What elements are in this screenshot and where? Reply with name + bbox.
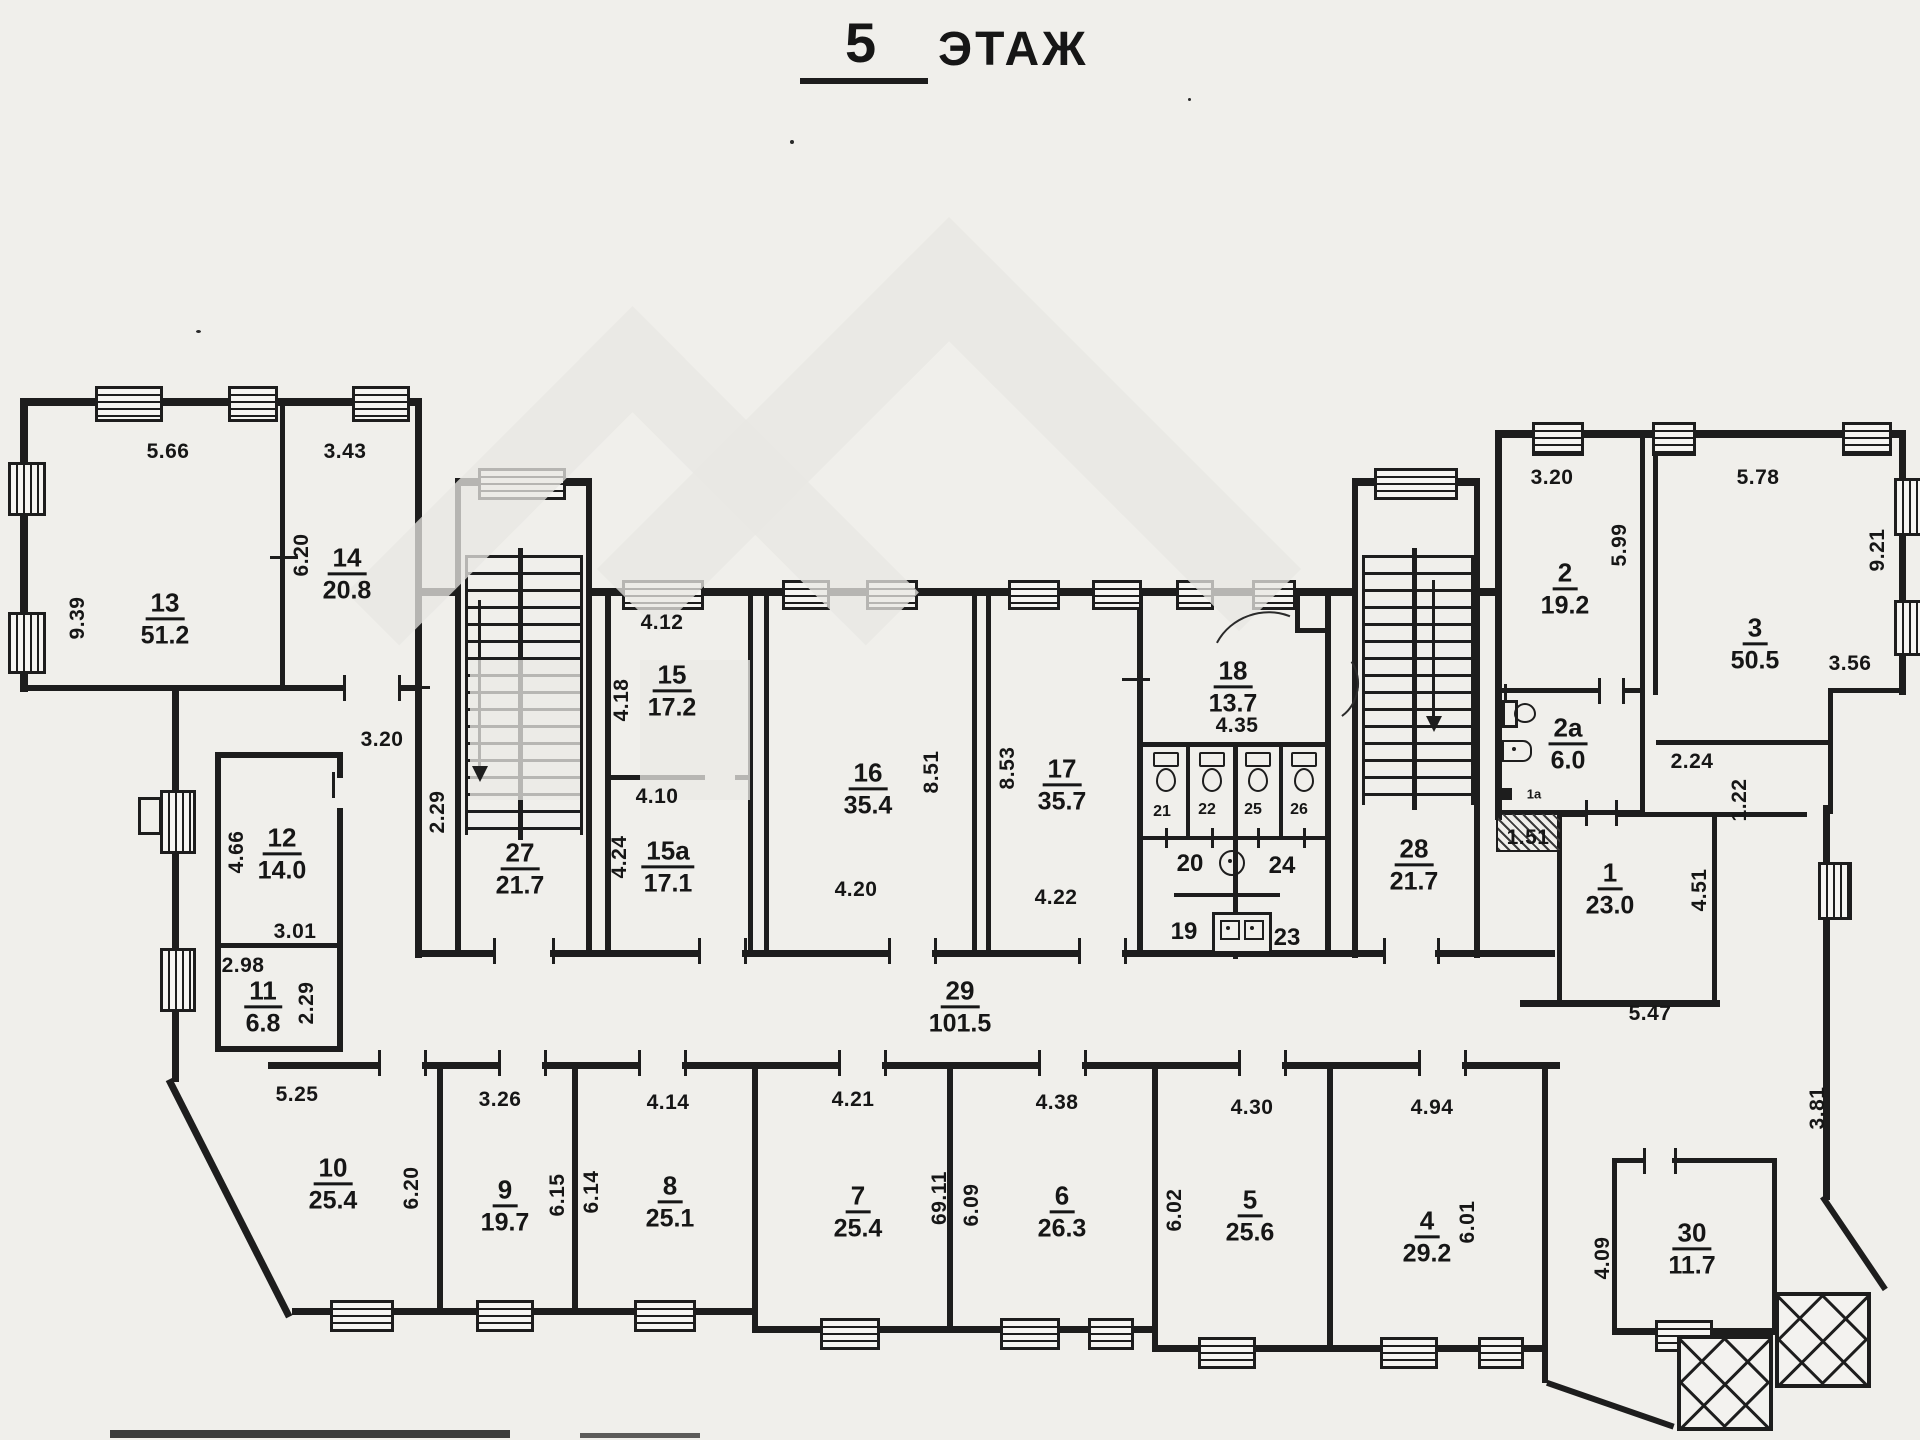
room-18-number: 18 [1214,657,1253,688]
window-hatch [228,386,278,422]
wall-diagonal [1546,1380,1675,1430]
door-mark [1257,828,1260,848]
sink-icon [1502,740,1532,762]
corridor-29-area: 101.5 [929,1009,992,1039]
cell-24-label: 24 [1269,852,1296,880]
room-14-number: 14 [328,544,367,575]
door-mark [1084,1050,1087,1076]
window-hatch [1532,422,1584,456]
room-6-label: 626.3 [1038,1182,1087,1243]
door-opening [890,948,932,959]
room-16-number: 16 [849,759,888,790]
door-mark [402,686,430,689]
dim-3-81: 3.81 [1806,1087,1830,1130]
door-opening [1240,1060,1282,1071]
dim-3-01: 3.01 [274,920,317,944]
window-hatch [352,386,410,422]
page-title: ЭТАЖ [938,22,1089,77]
dim-4-14: 4.14 [647,1091,690,1115]
dim-5-47: 5.47 [1629,1002,1672,1026]
room-9-area: 19.7 [481,1208,530,1238]
dim-4-09: 4.09 [1591,1237,1615,1280]
window-hatch [1842,422,1892,456]
room-13-area: 51.2 [141,621,190,651]
wall [1712,812,1717,1004]
toilet-icon [1199,752,1225,792]
room-8-number: 8 [658,1172,682,1203]
door-mark [1437,938,1440,964]
wall [437,1068,443,1314]
door-mark [884,1050,887,1076]
title-underline [800,78,928,84]
scan-speck [790,140,794,144]
dim-4-12: 4.12 [641,611,684,635]
toilet-icon [1514,702,1536,723]
wall [1152,1068,1158,1350]
dim-6-20-a: 6.20 [290,534,314,577]
wall [1828,688,1906,693]
room-28-number: 28 [1395,835,1434,866]
door-mark [1418,1050,1421,1076]
room-5-label: 525.6 [1226,1186,1275,1247]
wall [1653,438,1658,695]
page-title: 5 [845,10,876,75]
room-10-area: 25.4 [309,1186,358,1216]
watermark-chevron [597,217,1301,921]
dim-8-53: 8.53 [996,747,1020,790]
room-8-label: 825.1 [646,1172,695,1233]
dim-2-29-a: 2.29 [295,982,319,1025]
room-27-label: 2721.7 [496,839,545,900]
scan-smudge [580,1433,700,1438]
room-17-label: 1735.7 [1038,755,1087,816]
wall [1186,747,1190,839]
room-15a-area: 17.1 [641,869,694,899]
room-2a-area: 6.0 [1549,746,1588,776]
dim-3-56: 3.56 [1829,652,1872,676]
dim-4-35: 4.35 [1216,714,1259,738]
dim-1-51: 1.51 [1507,826,1550,850]
window-hatch [1198,1337,1256,1369]
door-opening [1080,948,1122,959]
window-hatch [160,790,196,854]
dim-5-25: 5.25 [276,1083,319,1107]
room-1-label: 123.0 [1586,859,1635,920]
door-mark [424,1050,427,1076]
room-10-label: 1025.4 [309,1154,358,1215]
stair-arrow-line [1432,580,1435,720]
wall [752,1068,758,1330]
room-30-label: 3011.7 [1668,1219,1715,1280]
wall [1640,690,1645,815]
cell-26-label: 26 [1290,801,1308,819]
cell-21-label: 21 [1153,803,1171,821]
fan-icon [1219,850,1245,876]
room-15a-label: 15а17.1 [641,837,694,898]
dim-69-11: 69.11 [928,1171,952,1225]
room-15a-number: 15а [641,837,694,868]
scan-speck [196,330,201,333]
room-27-area: 21.7 [496,871,545,901]
door-opening [1385,948,1435,959]
dim-4-18: 4.18 [610,679,634,722]
wall [1152,1326,1158,1352]
door-mark [493,938,496,964]
window-hatch [8,612,46,674]
room-16-area: 35.4 [844,791,893,821]
cell-22-label: 22 [1198,801,1216,819]
wall [1542,1345,1548,1383]
door-mark [398,675,401,701]
window-hatch [1894,600,1920,656]
room-13-number: 13 [146,589,185,620]
room-7-number: 7 [846,1182,870,1213]
entry-mark [1498,788,1512,800]
corridor-29-number: 29 [941,977,980,1008]
room-7-label: 725.4 [834,1182,883,1243]
room-4-label: 429.2 [1403,1207,1452,1268]
wall [1174,893,1280,897]
window-hatch [1380,1337,1438,1369]
dim-3-20-b: 3.20 [1531,466,1574,490]
wall [752,1308,758,1333]
cell-23-label: 23 [1274,924,1301,952]
door-mark [1504,684,1507,702]
wall [280,406,285,690]
window-hatch [476,1300,534,1332]
dim-4-10: 4.10 [636,785,679,809]
door-mark [1211,828,1214,848]
room-3-label: 350.5 [1731,614,1780,675]
room-9-label: 919.7 [481,1176,530,1237]
toilet-icon [1291,752,1317,792]
door-mark [1383,938,1386,964]
room-11-label: 116.8 [244,977,282,1038]
door-mark [838,1050,841,1076]
room-15-number: 15 [653,661,692,692]
window-hatch [1000,1318,1060,1350]
wall [1656,740,1831,745]
window-hatch [1478,1337,1524,1369]
wall [1279,747,1283,839]
dim-3-43: 3.43 [324,440,367,464]
room-4-area: 29.2 [1403,1239,1452,1269]
room-12-label: 1214.0 [258,824,307,885]
dim-3-26: 3.26 [479,1088,522,1112]
dim-3-20-a: 3.20 [361,728,404,752]
door-mark [1674,1148,1677,1174]
room-8-area: 25.1 [646,1204,695,1234]
wall [1828,688,1833,814]
room-12-number: 12 [263,824,302,855]
door-mark [934,938,937,964]
door-opening [380,1060,422,1071]
wall [1143,836,1327,840]
room-7-area: 25.4 [834,1214,883,1244]
door-mark [1464,1050,1467,1076]
wall [215,1046,343,1052]
wall [572,1068,578,1314]
room-1-number: 1 [1598,859,1622,890]
scan-smudge [110,1430,510,1438]
room-15-label: 1517.2 [648,661,697,722]
dim-4-51: 4.51 [1688,869,1712,912]
sink-icon [1244,920,1264,940]
dim-4-66: 4.66 [225,831,249,874]
door-mark [1598,678,1601,704]
room-17-number: 17 [1043,755,1082,786]
wall [215,752,343,758]
dim-6-01: 6.01 [1456,1201,1480,1244]
room-28-area: 21.7 [1390,867,1439,897]
wall [415,398,422,958]
window-hatch [1818,862,1852,920]
room-17-area: 35.7 [1038,787,1087,817]
window-hatch [95,386,163,422]
room-6-number: 6 [1050,1182,1074,1213]
floor-plan-sheet: 5 ЭТАЖ [0,0,1920,1440]
dim-4-20: 4.20 [835,878,878,902]
room-10-number: 10 [314,1154,353,1185]
window-hatch [330,1300,394,1332]
cell-25-label: 25 [1244,801,1262,819]
door-opening [700,948,742,959]
room-14-area: 20.8 [323,576,372,606]
window-hatch [8,462,46,516]
stair-arrow-icon [1426,716,1442,732]
room-12-area: 14.0 [258,856,307,886]
window-hatch [1894,478,1920,536]
dim-8-51: 8.51 [920,751,944,794]
room-15-area: 17.2 [648,693,697,723]
room-28-label: 2821.7 [1390,835,1439,896]
stair-arrow-icon [472,766,488,782]
door-mark [1622,678,1625,704]
door-mark [1585,800,1588,826]
room-11-area: 6.8 [244,1009,282,1039]
cell-19-label: 19 [1171,918,1198,946]
door-mark [744,938,747,964]
dim-6-20-b: 6.20 [400,1167,424,1210]
room-13-label: 1351.2 [141,589,190,650]
room-2-area: 19.2 [1541,591,1590,621]
dim-9-21: 9.21 [1866,529,1890,572]
staircase-28 [1362,555,1474,805]
elevator-shaft [1775,1292,1871,1388]
scan-speck [1188,98,1191,101]
door-mark [1238,1050,1241,1076]
dim-4-38: 4.38 [1036,1091,1079,1115]
dim-6-14: 6.14 [580,1171,604,1214]
door-mark [1284,1050,1287,1076]
room-27-number: 27 [501,839,540,870]
dim-2-29-b: 2.29 [426,791,450,834]
wall-diagonal [166,1078,293,1318]
window-hatch [160,948,196,1012]
wall-diagonal [1820,1195,1888,1291]
dim-2-98: 2.98 [222,954,265,978]
door-mark [1124,938,1127,964]
wall [1474,478,1480,958]
door-mark [498,1050,501,1076]
wall [1520,1000,1720,1007]
door-mark [1122,678,1150,681]
dim-4-30: 4.30 [1231,1096,1274,1120]
door-opening [1420,1060,1462,1071]
door-mark [888,938,891,964]
door-mark [684,1050,687,1076]
door-opening [640,1060,682,1071]
room-2-number: 2 [1553,559,1577,590]
wall [1327,1068,1333,1350]
door-opening [500,1060,542,1071]
dim-4-21: 4.21 [832,1088,875,1112]
dim-5-99: 5.99 [1608,524,1632,567]
door-mark [332,772,335,798]
dim-5-78: 5.78 [1737,466,1780,490]
wall [172,688,179,1082]
dim-9-39: 9.39 [66,597,90,640]
dim-6-09: 6.09 [960,1184,984,1227]
door-opening [840,1060,882,1071]
door-mark [343,675,346,701]
wall [1495,430,1502,820]
door-mark [1643,1148,1646,1174]
wall [1542,1068,1548,1350]
door-mark [638,1050,641,1076]
wall [1495,688,1598,693]
door-opening [1040,1060,1082,1071]
sink-icon [1220,920,1240,940]
room-4-number: 4 [1415,1207,1439,1238]
room-9-number: 9 [493,1176,517,1207]
room-5-area: 25.6 [1226,1218,1275,1248]
door-mark [1615,800,1618,826]
dim-2-24: 2.24 [1671,750,1714,774]
door-mark [544,1050,547,1076]
window-hatch [1088,1318,1134,1350]
room-11-number: 11 [244,977,282,1008]
window-hatch [634,1300,696,1332]
room-1-area: 23.0 [1586,891,1635,921]
room-18-label: 1813.7 [1209,657,1258,718]
wall [268,1062,1560,1069]
cell-20-label: 20 [1177,850,1204,878]
stair-stringer [1412,548,1417,810]
wall [1640,438,1645,695]
dim-5-66: 5.66 [147,440,190,464]
dim-4-22: 4.22 [1035,886,1078,910]
cell-1a-label: 1а [1527,787,1541,802]
room-3-number: 3 [1743,614,1767,645]
dim-1-22: 1.22 [1728,779,1752,822]
door-mark [1303,828,1306,848]
door-mark [698,938,701,964]
corridor-29-label: 29101.5 [929,977,992,1038]
wall [215,752,221,1050]
window-hatch [820,1318,880,1350]
door-mark [552,938,555,964]
dim-6-02: 6.02 [1163,1189,1187,1232]
door-mark [1165,828,1168,848]
wall [1672,1158,1777,1163]
room-16-label: 1635.4 [844,759,893,820]
room-6-area: 26.3 [1038,1214,1087,1244]
dim-4-94: 4.94 [1411,1096,1454,1120]
door-mark [1078,938,1081,964]
wall-niche [138,797,162,835]
room-30-number: 30 [1673,1219,1712,1250]
elevator-shaft [1677,1335,1773,1431]
dim-6-15: 6.15 [546,1174,570,1217]
wall [1352,478,1358,958]
wall [20,685,345,691]
dim-4-24: 4.24 [608,836,632,879]
toilet-icon [1153,752,1179,792]
window-hatch [1374,468,1458,500]
window-hatch [1652,422,1696,456]
toilet-icon [1245,752,1271,792]
room-3-area: 50.5 [1731,646,1780,676]
room-5-number: 5 [1238,1186,1262,1217]
room-30-area: 11.7 [1668,1251,1715,1281]
door-mark [378,1050,381,1076]
room-2a-label: 2а6.0 [1549,714,1588,775]
room-14-label: 1420.8 [323,544,372,605]
door-opening [337,778,343,808]
room-2a-number: 2а [1549,714,1588,745]
door-opening [495,948,550,959]
door-mark [1038,1050,1041,1076]
room-2-label: 219.2 [1541,559,1590,620]
wall [1615,812,1807,817]
